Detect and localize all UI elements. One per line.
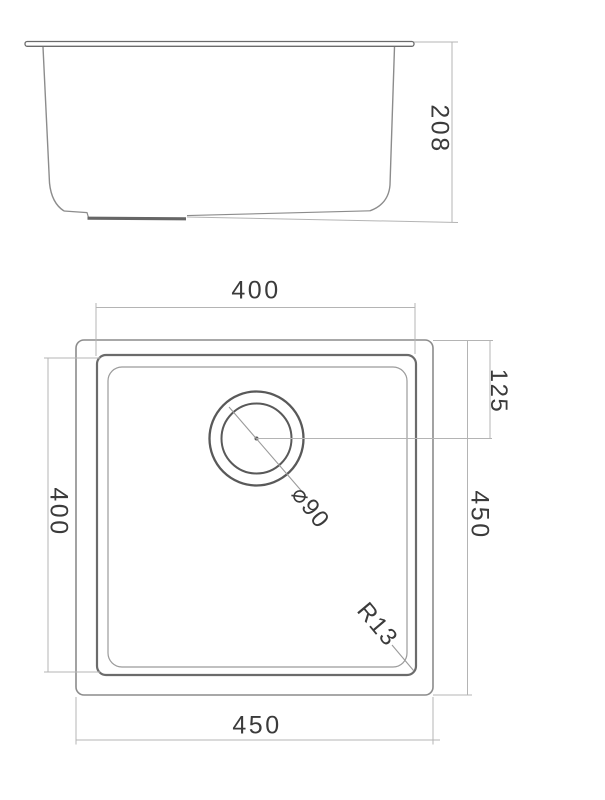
plan-view <box>44 303 493 745</box>
outer-height-dimension: 450 <box>467 490 492 539</box>
outer-width-dimension: 450 <box>232 714 281 739</box>
inner-width-dimension: 400 <box>231 279 280 304</box>
side-view-bottom-edge-right <box>187 211 370 216</box>
inner-width-dim-extensions <box>96 303 415 356</box>
side-view-left-wall <box>43 47 64 211</box>
side-view <box>25 42 458 223</box>
height-dim-extension-bottom <box>187 217 458 223</box>
side-height-dimension-text: 208 <box>427 104 452 153</box>
side-view-bottom-edge-left <box>64 211 89 218</box>
drain-offset-dimension: 125 <box>486 369 510 414</box>
technical-drawing: 208 400 400 450 125 450 ⌀90 R13 <box>0 0 605 800</box>
drawing-linework <box>0 0 605 800</box>
side-view-right-wall <box>370 47 395 211</box>
side-view-rim <box>25 42 414 47</box>
inner-height-dimension: 400 <box>46 487 71 536</box>
side-view-drain-recess <box>88 218 187 219</box>
